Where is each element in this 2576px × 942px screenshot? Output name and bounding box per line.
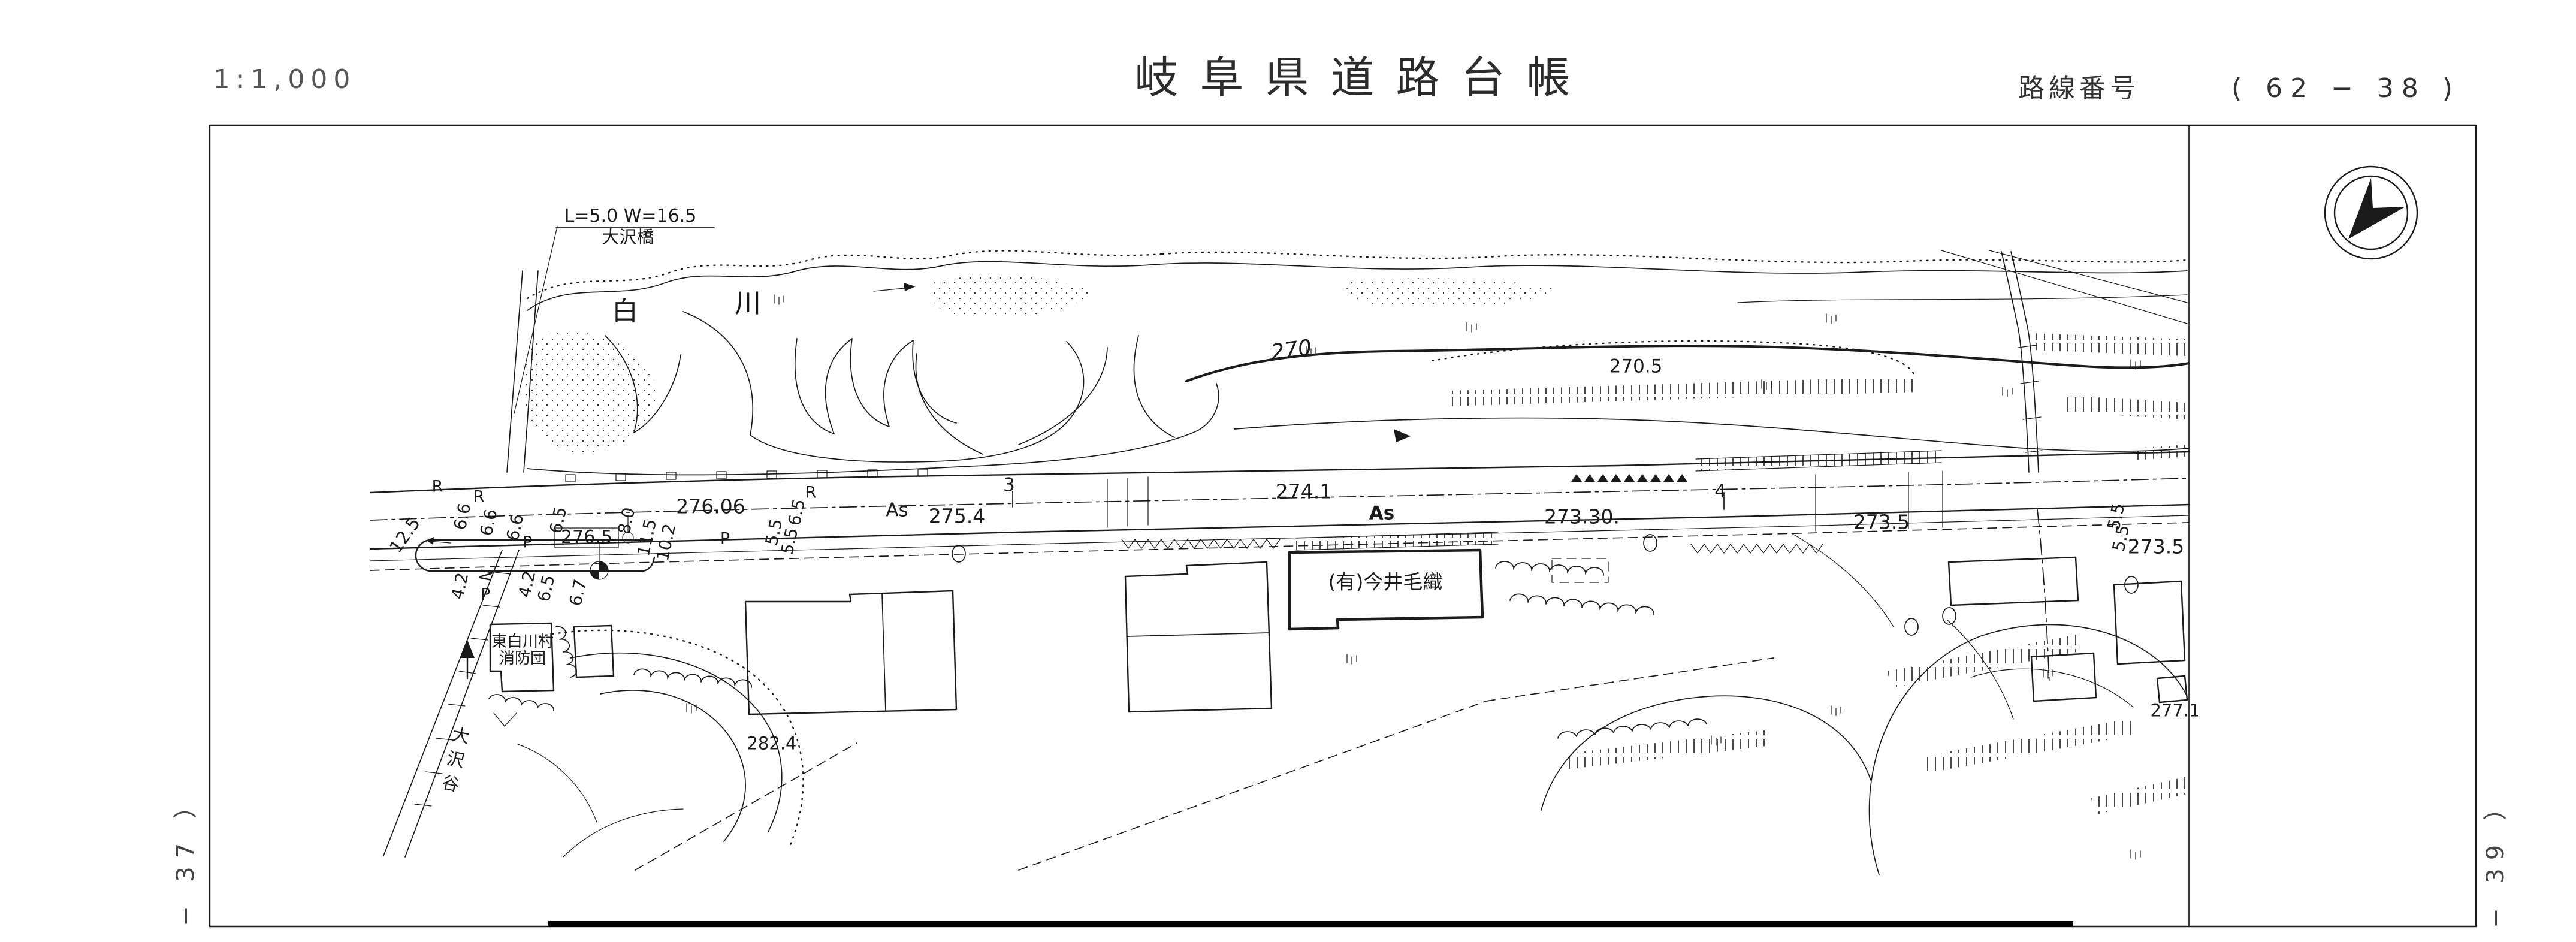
page-title: 岐阜県道路台帳 (1135, 56, 1592, 100)
surface-as-1: As (886, 502, 908, 520)
spot-elevation-270-5: 270.5 (1609, 358, 1663, 376)
map-linework (0, 0, 2576, 942)
road-elevation-273-5-a: 273.5 (1853, 512, 1910, 532)
road-elevation-276-06: 276.06 (676, 497, 745, 517)
company-label: (有)今井毛織 (1328, 572, 1443, 592)
benchmark-icon (590, 544, 608, 579)
road-elevation-274-1: 274.1 (1276, 482, 1332, 502)
mark-r-c: R (805, 485, 817, 501)
river-linework (523, 250, 2189, 531)
route-number-value: ( 62 − 38 ) (2231, 76, 2460, 102)
surface-as-2: As (1369, 505, 1394, 523)
mark-p-c: P (481, 587, 490, 603)
spot-elevation-282-4: 282.4 (747, 735, 796, 753)
spot-elevation-277-1: 277.1 (2150, 702, 2200, 720)
river-name-char2: 川 (735, 291, 761, 317)
access-arrow-icon (460, 640, 475, 678)
station-3: 3 (1003, 476, 1015, 495)
north-arrow-icon (2325, 167, 2417, 259)
hills-linework (1541, 533, 2190, 875)
road-elevation-275-4: 275.4 (929, 506, 985, 526)
mark-r-b: R (473, 489, 485, 505)
river-mark-icon (1394, 429, 1411, 442)
flow-arrow-icon (904, 283, 916, 291)
mark-p-b: P (720, 531, 730, 547)
river-name-char1: 白 (612, 298, 638, 325)
contour-label-270: 270 (1269, 337, 1313, 364)
adjacent-sheet-left: − 37 ） (174, 786, 198, 926)
adjacent-sheet-right: − 39 ） (2484, 788, 2508, 928)
road-elevation-273-30: 273.30. (1544, 507, 1620, 527)
route-number-label: 路線番号 (2018, 76, 2140, 102)
fire-brigade-line1: 東白川村 (491, 634, 554, 650)
bridge-dimensions: L=5.0 W=16.5 (564, 207, 697, 225)
station-4: 4 (1714, 483, 1726, 502)
mark-r-a: R (432, 479, 443, 495)
road-ledger-sheet: 1:1,000 岐阜県道路台帳 路線番号 ( 62 − 38 ) − 37 ） … (0, 0, 2576, 942)
road-elevation-276-5: 276.5 (561, 529, 612, 547)
fire-brigade-line2: 消防団 (499, 651, 546, 666)
bridge-name: 大沢橋 (602, 229, 654, 246)
road-elevation-273-5-b: 273.5 (2128, 537, 2184, 557)
road-linework (370, 445, 2189, 870)
mark-p-a: P (523, 535, 532, 551)
scale-label: 1:1,000 (213, 67, 357, 93)
